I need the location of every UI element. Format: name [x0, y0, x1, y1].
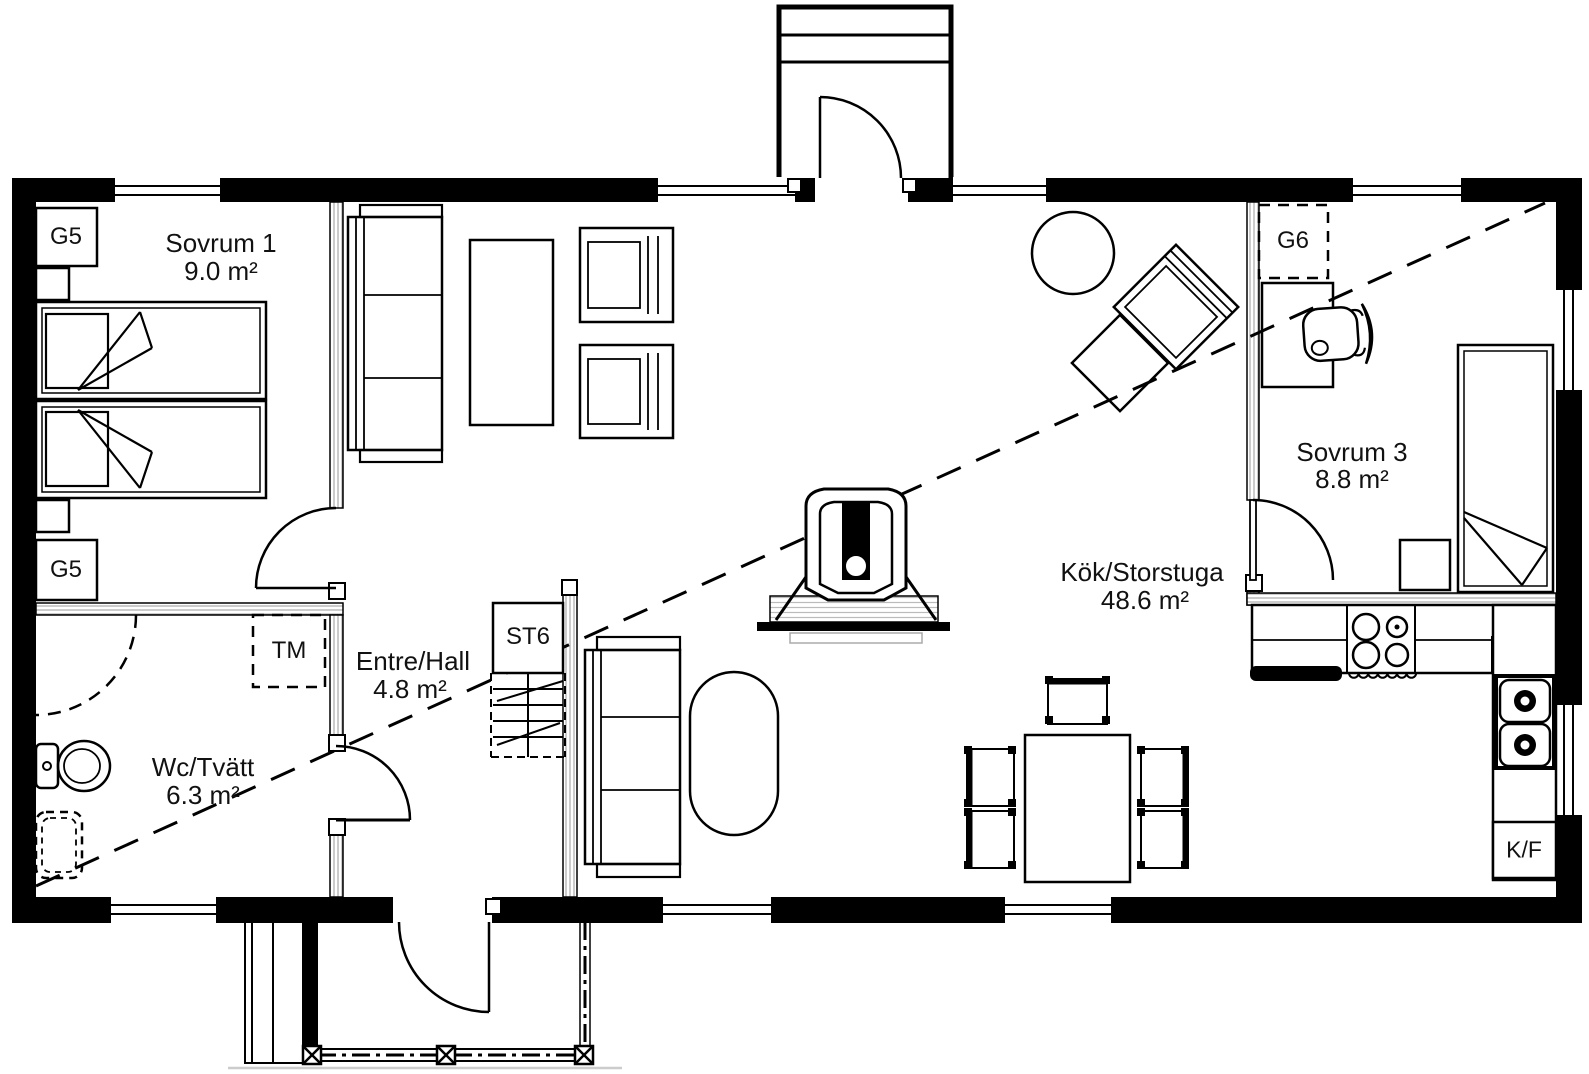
- deck-railing-right: [580, 922, 590, 1046]
- room-label-sovrum3-area: 8.8 m²: [1315, 466, 1389, 492]
- railing-post: [575, 1046, 593, 1064]
- door-opening-bottom: [393, 896, 492, 924]
- window-top-3: [953, 177, 1046, 203]
- floor-plan-canvas: Sovrum 1 9.0 m² Wc/Tvätt 6.3 m² Entre/Ha…: [0, 0, 1589, 1074]
- wardrobe-label-g6: G6: [1277, 229, 1309, 253]
- sofa-large: [348, 205, 442, 462]
- door-sovrum3: [1250, 500, 1333, 580]
- doors: [256, 97, 1333, 1012]
- window-bottom-1: [111, 896, 216, 924]
- room-label-wc-name: Wc/Tvätt: [152, 754, 255, 780]
- ottoman: [1072, 315, 1168, 411]
- door-entry: [399, 922, 489, 1012]
- fridge-freezer-label-kf: K/F: [1506, 839, 1542, 862]
- room-label-hall-area: 4.8 m²: [373, 676, 447, 702]
- sovrum3-furniture: [1259, 205, 1553, 592]
- dining-chair-left-2: [964, 808, 1016, 869]
- round-table: [1032, 212, 1114, 294]
- door-opening-top: [815, 177, 908, 203]
- bed-3: [1458, 345, 1553, 592]
- storstuga-corner-furniture: [1032, 212, 1238, 411]
- coffee-table: [470, 240, 553, 425]
- nightstand: [36, 268, 69, 300]
- room-label-hall-name: Entre/Hall: [356, 648, 470, 674]
- window-right-1: [1555, 290, 1583, 390]
- porch-bottom: [228, 922, 622, 1068]
- door-wc: [336, 746, 410, 820]
- stair-label-st6: ST6: [506, 625, 550, 649]
- room-label-sovrum1-area: 9.0 m²: [184, 258, 258, 284]
- office-chair: [1302, 303, 1374, 368]
- washing-machine-label-tm: TM: [272, 639, 307, 663]
- railing-post: [303, 1046, 321, 1064]
- room-label-kok-area: 48.6 m²: [1101, 587, 1189, 613]
- room-label-sovrum1-name: Sovrum 1: [165, 230, 276, 256]
- oval-table: [690, 672, 778, 835]
- room-label-wc-area: 6.3 m²: [166, 782, 240, 808]
- sofa-hall: [585, 637, 680, 877]
- section-line: [36, 203, 1545, 886]
- window-top-4: [1353, 177, 1461, 203]
- window-bottom-3: [1005, 896, 1111, 924]
- window-right-2: [1555, 705, 1583, 815]
- armchair-1: [580, 228, 673, 322]
- window-top-1: [115, 177, 220, 203]
- floor-plan-drawing: [0, 0, 1589, 1074]
- dining-chair-left-1: [964, 746, 1016, 807]
- deck-edge: [303, 922, 318, 1048]
- bed-1: [36, 302, 266, 399]
- room-label-kok-name: Kök/Storstuga: [1060, 559, 1223, 585]
- wardrobe-label-g5-top: G5: [50, 225, 82, 249]
- dining-chair-right-2: [1137, 808, 1189, 869]
- toilet: [36, 741, 110, 791]
- wardrobe-label-g5-bottom: G5: [50, 558, 82, 582]
- nightstand: [36, 500, 69, 532]
- bed-2: [36, 401, 266, 498]
- dining-chair-right-1: [1137, 746, 1189, 807]
- room-label-sovrum3-name: Sovrum 3: [1296, 439, 1407, 465]
- armchair-2: [580, 345, 673, 438]
- counter-edge: [1250, 666, 1342, 681]
- door-sovrum1: [256, 508, 336, 588]
- railing-post: [437, 1046, 455, 1064]
- window-top-2: [658, 177, 795, 203]
- wood-stove: [757, 489, 950, 643]
- shower-arc: [36, 615, 136, 715]
- dining-set: [964, 676, 1189, 882]
- exterior-walls: [12, 178, 1582, 923]
- nightstand: [1400, 540, 1450, 590]
- window-bottom-2: [663, 896, 771, 924]
- dining-chair-top: [1045, 676, 1110, 724]
- dining-table: [1025, 735, 1130, 882]
- porch-top: [779, 7, 951, 179]
